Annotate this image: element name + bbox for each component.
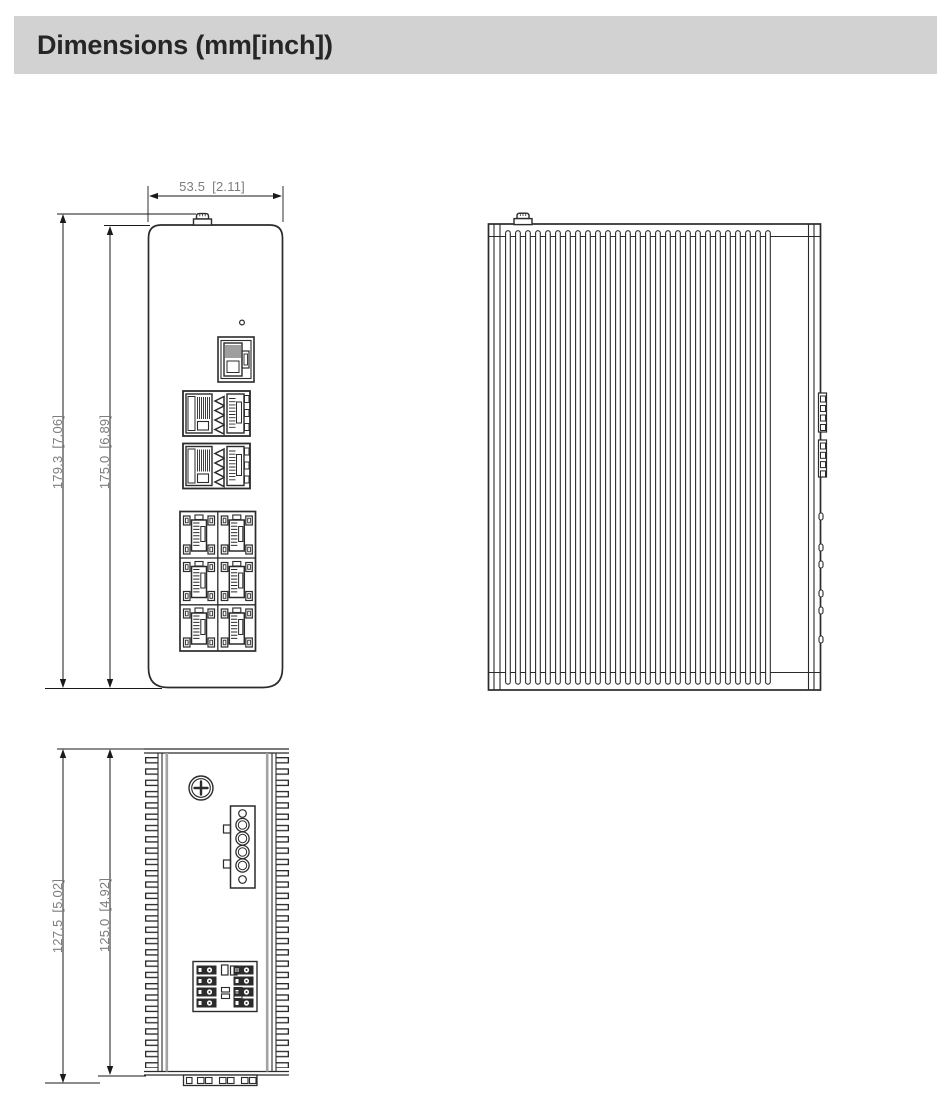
top-view: 127.5[5.02] 125.0[4.92] (45, 749, 289, 1086)
dim-top-body-depth: 125.0[4.92] (97, 749, 146, 1076)
power-terminal-block (224, 806, 256, 888)
dim-top-overall-depth: 127.5[5.02] (45, 749, 146, 1083)
fin-teeth-left (145, 757, 158, 1068)
dim-front-body-height: 175.0[6.89] (97, 226, 150, 689)
heatsink-fins (503, 230, 773, 686)
front-view: 53.5[2.11] 179.3[7.06] 175.0[6.89] (45, 179, 283, 689)
rj45-port-grid (180, 512, 256, 652)
fin-teeth-right (276, 757, 289, 1068)
top-housing-outline (144, 749, 289, 1075)
front-housing-outline (149, 225, 283, 688)
dim-front-width: 53.5[2.11] (148, 179, 283, 222)
side-view (489, 213, 827, 690)
dim-label-width: 53.5[2.11] (179, 179, 245, 194)
screw-head-icon (189, 776, 213, 800)
dimensions-drawing: 53.5[2.11] 179.3[7.06] 175.0[6.89] (0, 0, 951, 1108)
din-clip-strip (184, 1075, 258, 1086)
relay-terminal-block (193, 962, 257, 1012)
